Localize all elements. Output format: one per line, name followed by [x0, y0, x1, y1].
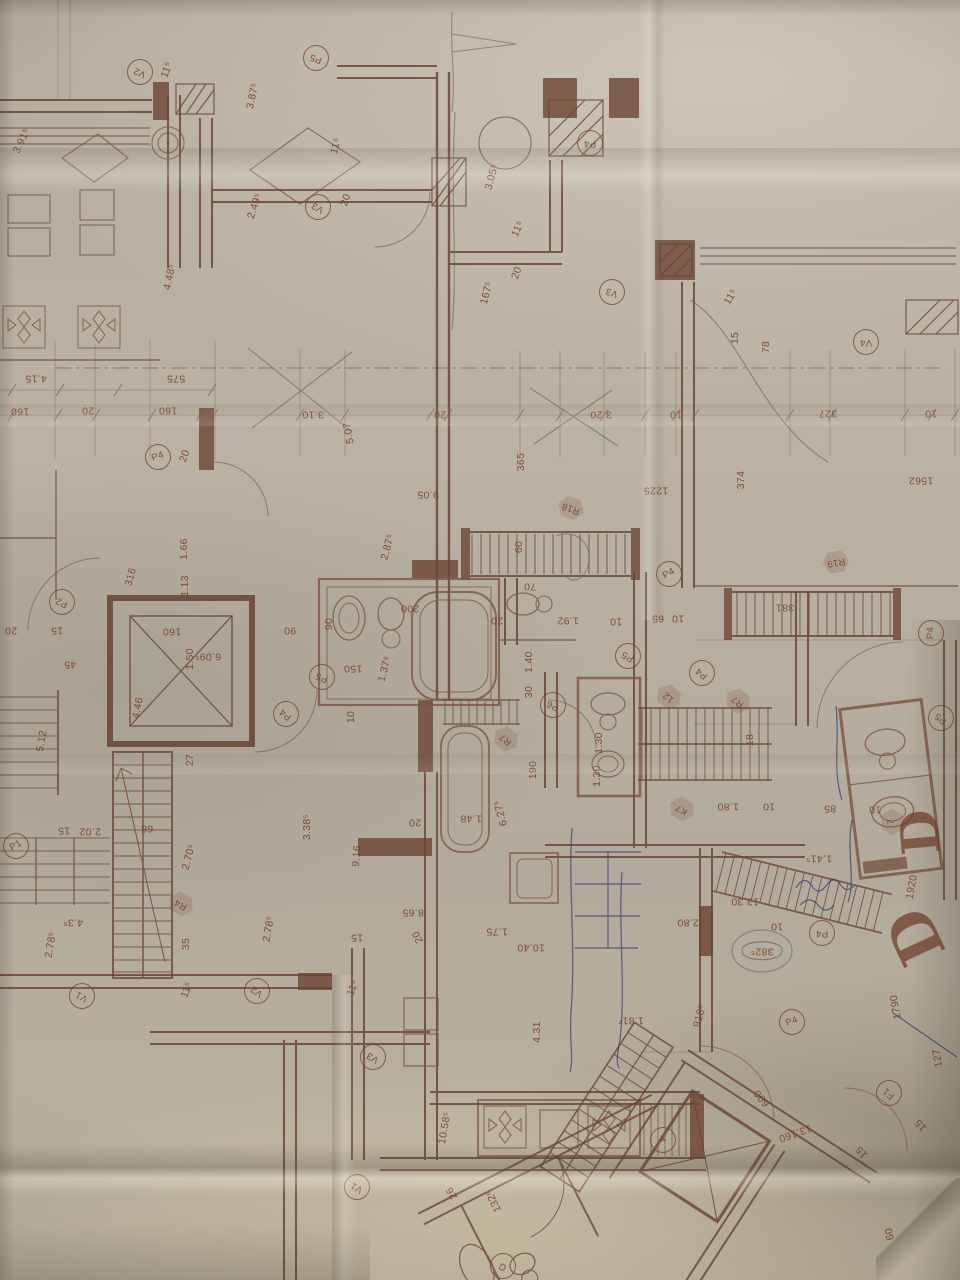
- dimension-label: 45: [64, 659, 76, 670]
- dimension-label: 4.3⁵: [63, 917, 83, 928]
- dimension-label: 65: [652, 613, 664, 624]
- freehand-letter: D: [893, 807, 949, 857]
- dimension-label: 10.40: [517, 942, 545, 953]
- dimension-label: 15: [51, 625, 63, 636]
- labels-layer: V211⁵3.91⁵3.87⁵P511⁵2.49⁵V3203.05⁵11⁵201…: [0, 0, 960, 1280]
- dimension-label: 1562: [909, 475, 934, 486]
- dimension-label: 70: [524, 581, 536, 592]
- axis-marker-circle: P4: [684, 655, 721, 692]
- dimension-label: 15: [351, 932, 363, 943]
- dimension-label: 160: [159, 405, 177, 416]
- dimension-label: 374: [736, 471, 747, 489]
- dimension-label: 1.66: [179, 538, 190, 560]
- dimension-label: 4.48⁵: [162, 263, 178, 291]
- dimension-label: 1.37⁵: [377, 655, 394, 683]
- axis-marker-circle: V1: [339, 1169, 375, 1205]
- dimension-label: 1.81⁷: [618, 1015, 644, 1026]
- dimension-label: 2.49⁵: [246, 192, 264, 220]
- dimension-label: 30: [524, 686, 535, 698]
- axis-marker-circle: P1: [0, 828, 34, 864]
- axis-marker-hexagon: R18: [555, 493, 588, 523]
- dimension-label: 15: [913, 1117, 929, 1133]
- dimension-label: 6.27⁵: [493, 799, 510, 827]
- dimension-label: 60: [514, 541, 525, 553]
- dimension-label: 20: [510, 265, 524, 280]
- dimension-label: 15: [58, 825, 70, 836]
- dimension-label: 160: [163, 626, 181, 637]
- dimension-label: 160: [11, 406, 29, 417]
- dimension-label: 150: [344, 663, 362, 674]
- dimension-label: 6.09⁵: [195, 651, 221, 662]
- dimension-label: 68: [141, 823, 153, 834]
- dimension-label: 316: [124, 567, 139, 588]
- dimension-label: 8.65: [402, 907, 424, 918]
- axis-marker-circle: P4: [268, 696, 305, 733]
- axis-marker-hexagon: K7: [665, 793, 699, 826]
- dimension-label: 13.160: [777, 1122, 812, 1143]
- axis-marker-circle: P5: [610, 638, 646, 674]
- dimension-label: 1.30: [594, 732, 605, 754]
- dimension-label: 20: [409, 817, 421, 828]
- axis-marker-circle: V4: [853, 329, 879, 355]
- dimension-label: 575: [167, 373, 185, 384]
- axis-marker-hexagon: R4: [164, 888, 198, 921]
- dimension-label: 15: [730, 332, 741, 344]
- axis-marker-circle: P5: [299, 41, 332, 74]
- dimension-label: 1790: [889, 994, 904, 1020]
- dimension-label: 9.05: [417, 489, 439, 500]
- dimension-label: 3.38⁵: [302, 814, 313, 840]
- dimension-label: 10: [925, 408, 937, 419]
- dimension-label: 27: [185, 754, 196, 766]
- dimension-label: 10: [670, 409, 682, 420]
- dimension-label: 918⁵: [692, 1003, 708, 1028]
- freehand-letter: D: [876, 898, 955, 973]
- dimension-label: 9.16: [351, 845, 363, 867]
- dimension-label: 1.92: [557, 615, 579, 626]
- axis-marker-circle: P5: [305, 660, 340, 695]
- axis-marker-circle: P4: [141, 440, 174, 473]
- blueprint-photo: V211⁵3.91⁵3.87⁵P511⁵2.49⁵V3203.05⁵11⁵201…: [0, 0, 960, 1280]
- axis-marker-circle: V3: [595, 275, 628, 308]
- dimension-label: 11⁵: [329, 137, 343, 155]
- dimension-label: 2.78⁵: [44, 931, 59, 959]
- axis-marker-circle: P5: [923, 700, 960, 737]
- axis-marker-circle: V3: [300, 189, 336, 225]
- dimension-label: 4.15: [25, 373, 47, 384]
- axis-marker-circle: P2: [45, 585, 80, 620]
- dimension-label: 20: [491, 615, 503, 626]
- dimension-label: 167⁵: [479, 280, 495, 305]
- dimension-label: 10: [610, 616, 622, 627]
- dimension-label: 10.58⁵: [437, 1111, 453, 1145]
- axis-marker-hexagon: R7: [721, 684, 756, 718]
- axis-marker-circle: P4: [651, 556, 687, 592]
- axis-marker-circle: P4: [577, 130, 603, 156]
- dimension-label: 2.78⁵: [262, 915, 277, 943]
- dimension-label: 190: [528, 761, 539, 779]
- dimension-label: 85: [824, 803, 836, 814]
- axis-marker-circle: G: [485, 1248, 522, 1280]
- dimension-label: 1.80: [717, 801, 739, 812]
- dimension-label: 20: [339, 193, 353, 208]
- axis-marker-circle: P4: [918, 620, 944, 646]
- dimension-label: 60: [884, 1227, 896, 1241]
- dimension-label: 26: [444, 1185, 459, 1201]
- dimension-label: 78: [761, 341, 772, 353]
- dimension-label: 132⁶: [484, 1188, 503, 1213]
- dimension-label: 10: [869, 804, 881, 815]
- dimension-label: 90: [324, 618, 335, 630]
- dimension-label: 13.30: [731, 896, 759, 907]
- dimension-label: 10: [763, 801, 775, 812]
- dimension-label: 1225: [644, 485, 669, 496]
- axis-marker-hexagon: R7: [489, 722, 524, 756]
- dimension-label: 11⁵: [722, 287, 739, 306]
- dimension-label: 10: [771, 921, 783, 932]
- dimension-label: 11⁵: [159, 61, 174, 80]
- axis-marker-circle: V3: [355, 1039, 391, 1075]
- dimension-label: 11⁵: [345, 979, 360, 998]
- dimension-label: 11⁵: [179, 981, 194, 1000]
- dimension-label: 1.75: [486, 926, 508, 937]
- dimension-label: 3.10: [302, 409, 324, 420]
- dimension-label: 20: [178, 448, 192, 463]
- axis-marker-circle: V2: [239, 973, 275, 1009]
- axis-marker-circle: 4: [645, 1122, 681, 1158]
- axis-marker-circle: V1: [64, 978, 100, 1014]
- dimension-label: 2.02: [79, 826, 101, 837]
- axis-marker-circle: V2: [123, 55, 158, 90]
- dimension-label: 1.41⁵: [806, 853, 832, 864]
- dimension-label: 5.07: [342, 421, 356, 444]
- dimension-label: 1.50: [185, 648, 196, 670]
- axis-marker-circle: P4: [809, 920, 835, 946]
- dimension-label: 2.70⁵: [181, 843, 198, 871]
- dimension-label: 20: [5, 625, 17, 636]
- dimension-label: 381: [776, 602, 794, 613]
- dimension-label: 15: [854, 1144, 870, 1160]
- axis-marker-hexagon: R19: [821, 549, 851, 575]
- dimension-label: 382⁵: [741, 942, 782, 961]
- dimension-label: 20: [411, 929, 426, 945]
- axis-marker-circle: P6: [536, 688, 571, 723]
- dimension-label: 10: [346, 711, 357, 723]
- dimension-label: 35: [181, 938, 192, 950]
- dimension-label: 10: [672, 613, 684, 624]
- dimension-label: 1920: [905, 874, 920, 900]
- dimension-label: 1.48: [460, 813, 482, 824]
- dimension-label: 2.87⁵: [380, 533, 397, 561]
- dimension-label: 4.31: [532, 1021, 543, 1043]
- axis-marker-circle: F1: [871, 1075, 908, 1112]
- dimension-label: 327: [819, 408, 837, 419]
- dimension-label: 3.87⁵: [245, 82, 261, 110]
- axis-marker-circle: P4: [775, 1005, 808, 1038]
- dimension-label: 2.80: [677, 917, 699, 928]
- dimension-label: 5.12: [35, 729, 49, 752]
- dimension-label: 200: [401, 603, 419, 614]
- dimension-label: 11⁵: [510, 219, 526, 238]
- dimension-label: 127: [931, 1048, 945, 1068]
- dimension-label: 3.05⁵: [484, 163, 501, 191]
- dimension-label: 4.46: [131, 696, 146, 719]
- dimension-label: 1.40: [524, 651, 535, 673]
- dimension-label: 90: [284, 625, 296, 636]
- dimension-label: 365: [516, 453, 527, 471]
- dimension-label: 20: [434, 409, 446, 420]
- dimension-label: 18: [745, 734, 756, 746]
- dimension-label: 1.30: [592, 765, 603, 787]
- dimension-label: 20: [82, 405, 94, 416]
- dimension-label: 600: [752, 1088, 772, 1109]
- dimension-label: 3.91⁵: [12, 127, 33, 155]
- axis-marker-hexagon: 12: [652, 680, 687, 714]
- dimension-label: 3.20: [590, 409, 612, 420]
- dimension-label: 1.13: [180, 575, 191, 597]
